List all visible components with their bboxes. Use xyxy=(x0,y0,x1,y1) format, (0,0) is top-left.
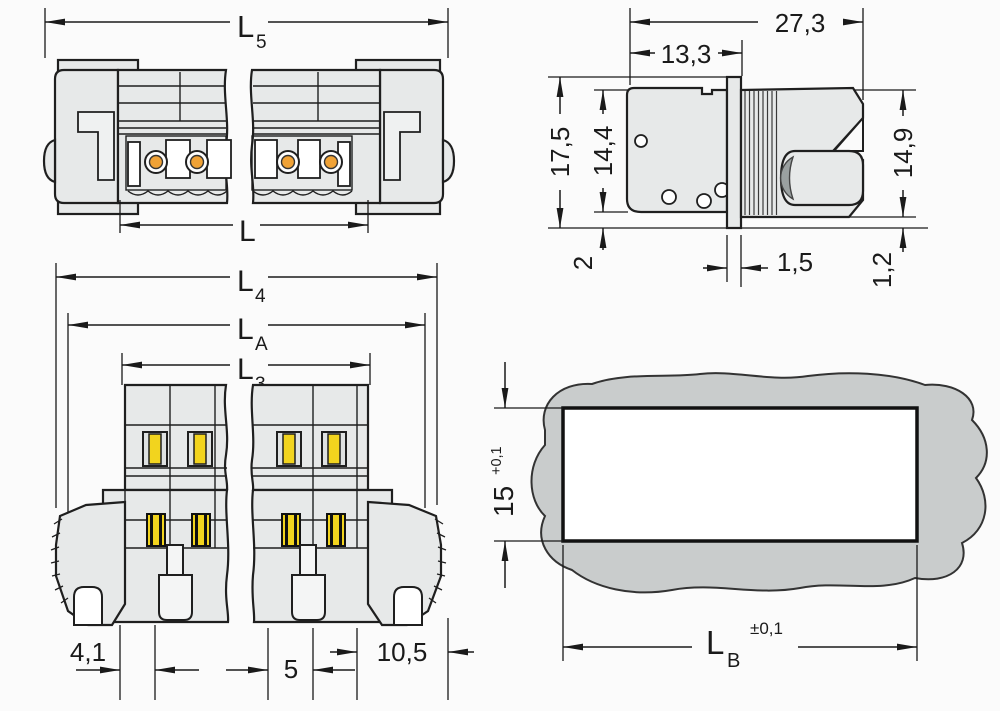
l5-label-sub: 5 xyxy=(256,32,267,53)
top-view: L 5 xyxy=(44,8,454,248)
clamp-slot-2 xyxy=(207,140,231,178)
side-front-body xyxy=(627,88,727,212)
clamp-slot-3 xyxy=(255,140,277,178)
dim-14-4-label: 14,4 xyxy=(588,126,618,177)
cutout-height-label-group: 15 +0,1 xyxy=(488,446,519,517)
l3-label: L xyxy=(237,353,254,386)
front-upper-right xyxy=(251,385,368,490)
panel-cutout-rect xyxy=(563,408,917,541)
dim-1-2-label: 1,2 xyxy=(867,252,897,288)
latch-bump-left xyxy=(44,140,55,182)
dim-27-label: 27,3 xyxy=(775,8,826,38)
side-latch-lobe xyxy=(781,151,863,205)
side-view: 27,3 13,3 17,5 14,4 14,9 2 1,2 1,5 xyxy=(545,8,928,288)
clamp-slot-4 xyxy=(298,140,320,178)
lb-tolerance: ±0,1 xyxy=(750,619,783,638)
l4-label-sub: 4 xyxy=(255,286,266,307)
la-label: L xyxy=(237,313,254,346)
dim-13-label: 13,3 xyxy=(661,39,712,69)
dim-2-label: 2 xyxy=(568,256,598,270)
la-label-sub: A xyxy=(255,334,268,355)
snap-foot-right-slot xyxy=(394,587,422,625)
l-label: L xyxy=(239,215,256,248)
dimension-drawing-canvas: L 5 xyxy=(0,0,1000,711)
dim-1-5-label: 1,5 xyxy=(777,247,813,277)
dim-10-5-label: 10,5 xyxy=(377,637,428,667)
snap-foot-left-slot xyxy=(74,587,102,625)
lb-label-sub: B xyxy=(727,650,740,672)
l4-label: L xyxy=(237,265,254,298)
cutout-height-tolerance: +0,1 xyxy=(489,446,505,475)
cutout-height-label: 15 xyxy=(488,486,519,517)
panel-cutout-view: 15 +0,1 L B ±0,1 xyxy=(488,362,987,672)
latch-bump-right xyxy=(443,140,454,182)
mounting-pegs xyxy=(159,545,325,620)
clamp-slot-left-end xyxy=(128,142,140,186)
connector-dimension-drawing: L 5 xyxy=(0,0,1000,711)
lb-label: L xyxy=(706,624,724,661)
dim-5-label: 5 xyxy=(284,654,298,684)
side-hole-1 xyxy=(635,135,647,147)
dim-14-9-label: 14,9 xyxy=(888,128,918,179)
front-view: L 4 L A L 3 xyxy=(51,263,474,700)
side-hole-3 xyxy=(697,194,711,208)
dim-4-1-label: 4,1 xyxy=(70,637,106,667)
dim-17-label: 17,5 xyxy=(545,127,575,178)
side-flange-plate xyxy=(727,77,741,228)
side-hole-2 xyxy=(662,190,676,204)
l5-label: L xyxy=(237,9,254,44)
